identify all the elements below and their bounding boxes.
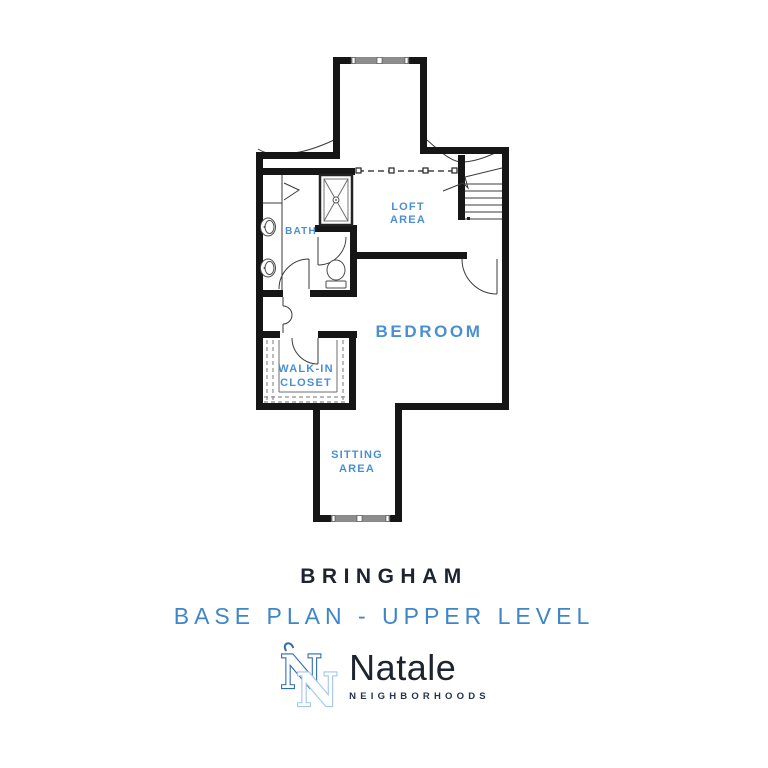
- monogram-light-n: N: [296, 663, 338, 710]
- room-label-sitting-line2: AREA: [339, 463, 375, 475]
- stair-wall: [458, 155, 465, 220]
- railing-post: [452, 168, 457, 173]
- shower-icon: [320, 175, 352, 225]
- railing-post: [356, 168, 361, 173]
- closet-top-wall-left: [256, 331, 280, 338]
- bath-south-wall: [310, 290, 357, 297]
- top-right-wall: [420, 147, 509, 154]
- dormer-top-wall-left: [333, 57, 351, 64]
- dormer-window-icon: [351, 58, 409, 64]
- floor-plan: LOFT AREA BATH BEDROOM WALK-IN CLOSET SI…: [0, 0, 768, 548]
- left-wall: [256, 152, 263, 410]
- sitting-window-icon: [331, 516, 390, 522]
- sink-icon: [261, 259, 276, 277]
- closet-bottom-wall: [256, 403, 356, 410]
- right-wall: [502, 147, 509, 410]
- bedroom-bottom-wall: [395, 403, 509, 410]
- toilet-icon: [326, 260, 346, 288]
- bath-sw-stub-wall: [256, 290, 283, 297]
- monogram-n-icon: N N: [278, 642, 340, 710]
- room-label-closet-line2: CLOSET: [280, 377, 332, 389]
- room-label-closet-line1: WALK-IN: [278, 363, 333, 375]
- closet-door-icon: [292, 338, 318, 364]
- sink-icon: [261, 218, 276, 236]
- sitting-left-wall: [313, 410, 320, 522]
- room-labels: LOFT AREA BATH BEDROOM WALK-IN CLOSET SI…: [278, 201, 482, 475]
- bedroom-door-icon: [462, 259, 497, 294]
- room-label-sitting-line1: SITTING: [331, 449, 383, 461]
- brand-tagline: NEIGHBORHOODS: [349, 691, 490, 702]
- bath-closet-door-icon: [284, 183, 299, 200]
- dormer-right-wall: [420, 57, 427, 152]
- brand-text: Natale NEIGHBORHOODS: [349, 650, 490, 702]
- bath-entry-door-icon: [279, 259, 309, 289]
- room-label-loft-line2: AREA: [390, 214, 426, 226]
- room-label-loft-line1: LOFT: [391, 201, 425, 213]
- toilet-east-wall: [350, 225, 357, 297]
- sitting-right-wall: [395, 410, 402, 522]
- dormer-left-wall: [333, 57, 340, 152]
- loft-railing: [356, 168, 458, 173]
- stair-newel: [467, 217, 470, 220]
- sitting-bottom-wall-right: [390, 515, 402, 522]
- railing-post: [423, 168, 428, 173]
- room-label-bath: BATH: [285, 226, 317, 237]
- plan-title: BRINGHAM: [0, 565, 768, 589]
- brand-name: Natale: [349, 650, 456, 686]
- railing-post: [389, 168, 394, 173]
- top-left-wall: [256, 152, 340, 159]
- plan-subtitle: BASE PLAN - UPPER LEVEL: [0, 603, 768, 630]
- room-label-bedroom: BEDROOM: [376, 322, 483, 341]
- brand-logo: N N Natale NEIGHBORHOODS: [278, 642, 490, 710]
- sitting-bottom-wall-left: [313, 515, 331, 522]
- linen-door-icon: [283, 297, 292, 333]
- loft-bedroom-wall: [350, 252, 467, 259]
- dormer-top-wall-right: [409, 57, 427, 64]
- stairs: [443, 168, 502, 220]
- closet-right-wall: [349, 331, 356, 410]
